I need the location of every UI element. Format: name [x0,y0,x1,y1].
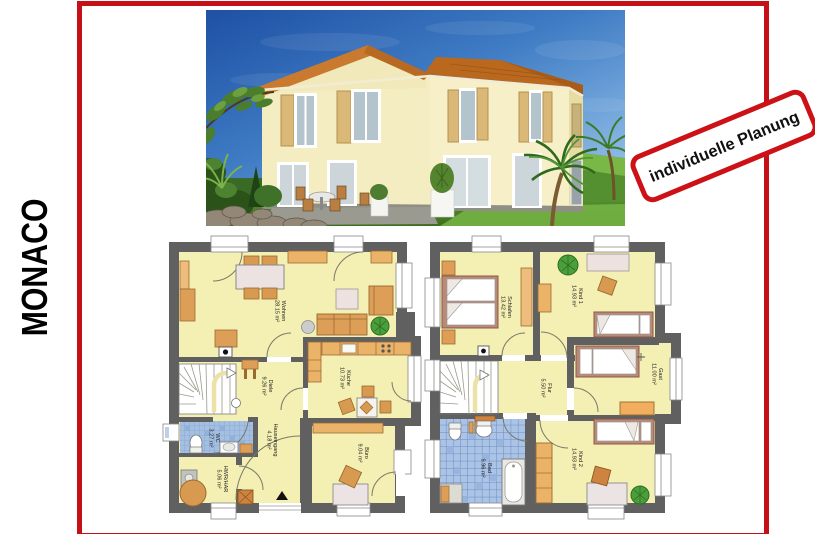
svg-text:Wohnen28.15 m²: Wohnen28.15 m² [274,300,287,322]
svg-text:Kind 214.93 m²: Kind 214.93 m² [571,448,584,470]
svg-text:HWR/HAR5.06 m²: HWR/HAR5.06 m² [216,466,229,493]
svg-text:Schlafen13.42 m²: Schlafen13.42 m² [500,296,513,318]
svg-text:Kind 114.93 m²: Kind 114.93 m² [571,285,584,307]
svg-text:Küche10.73 m²: Küche10.73 m² [339,367,352,389]
